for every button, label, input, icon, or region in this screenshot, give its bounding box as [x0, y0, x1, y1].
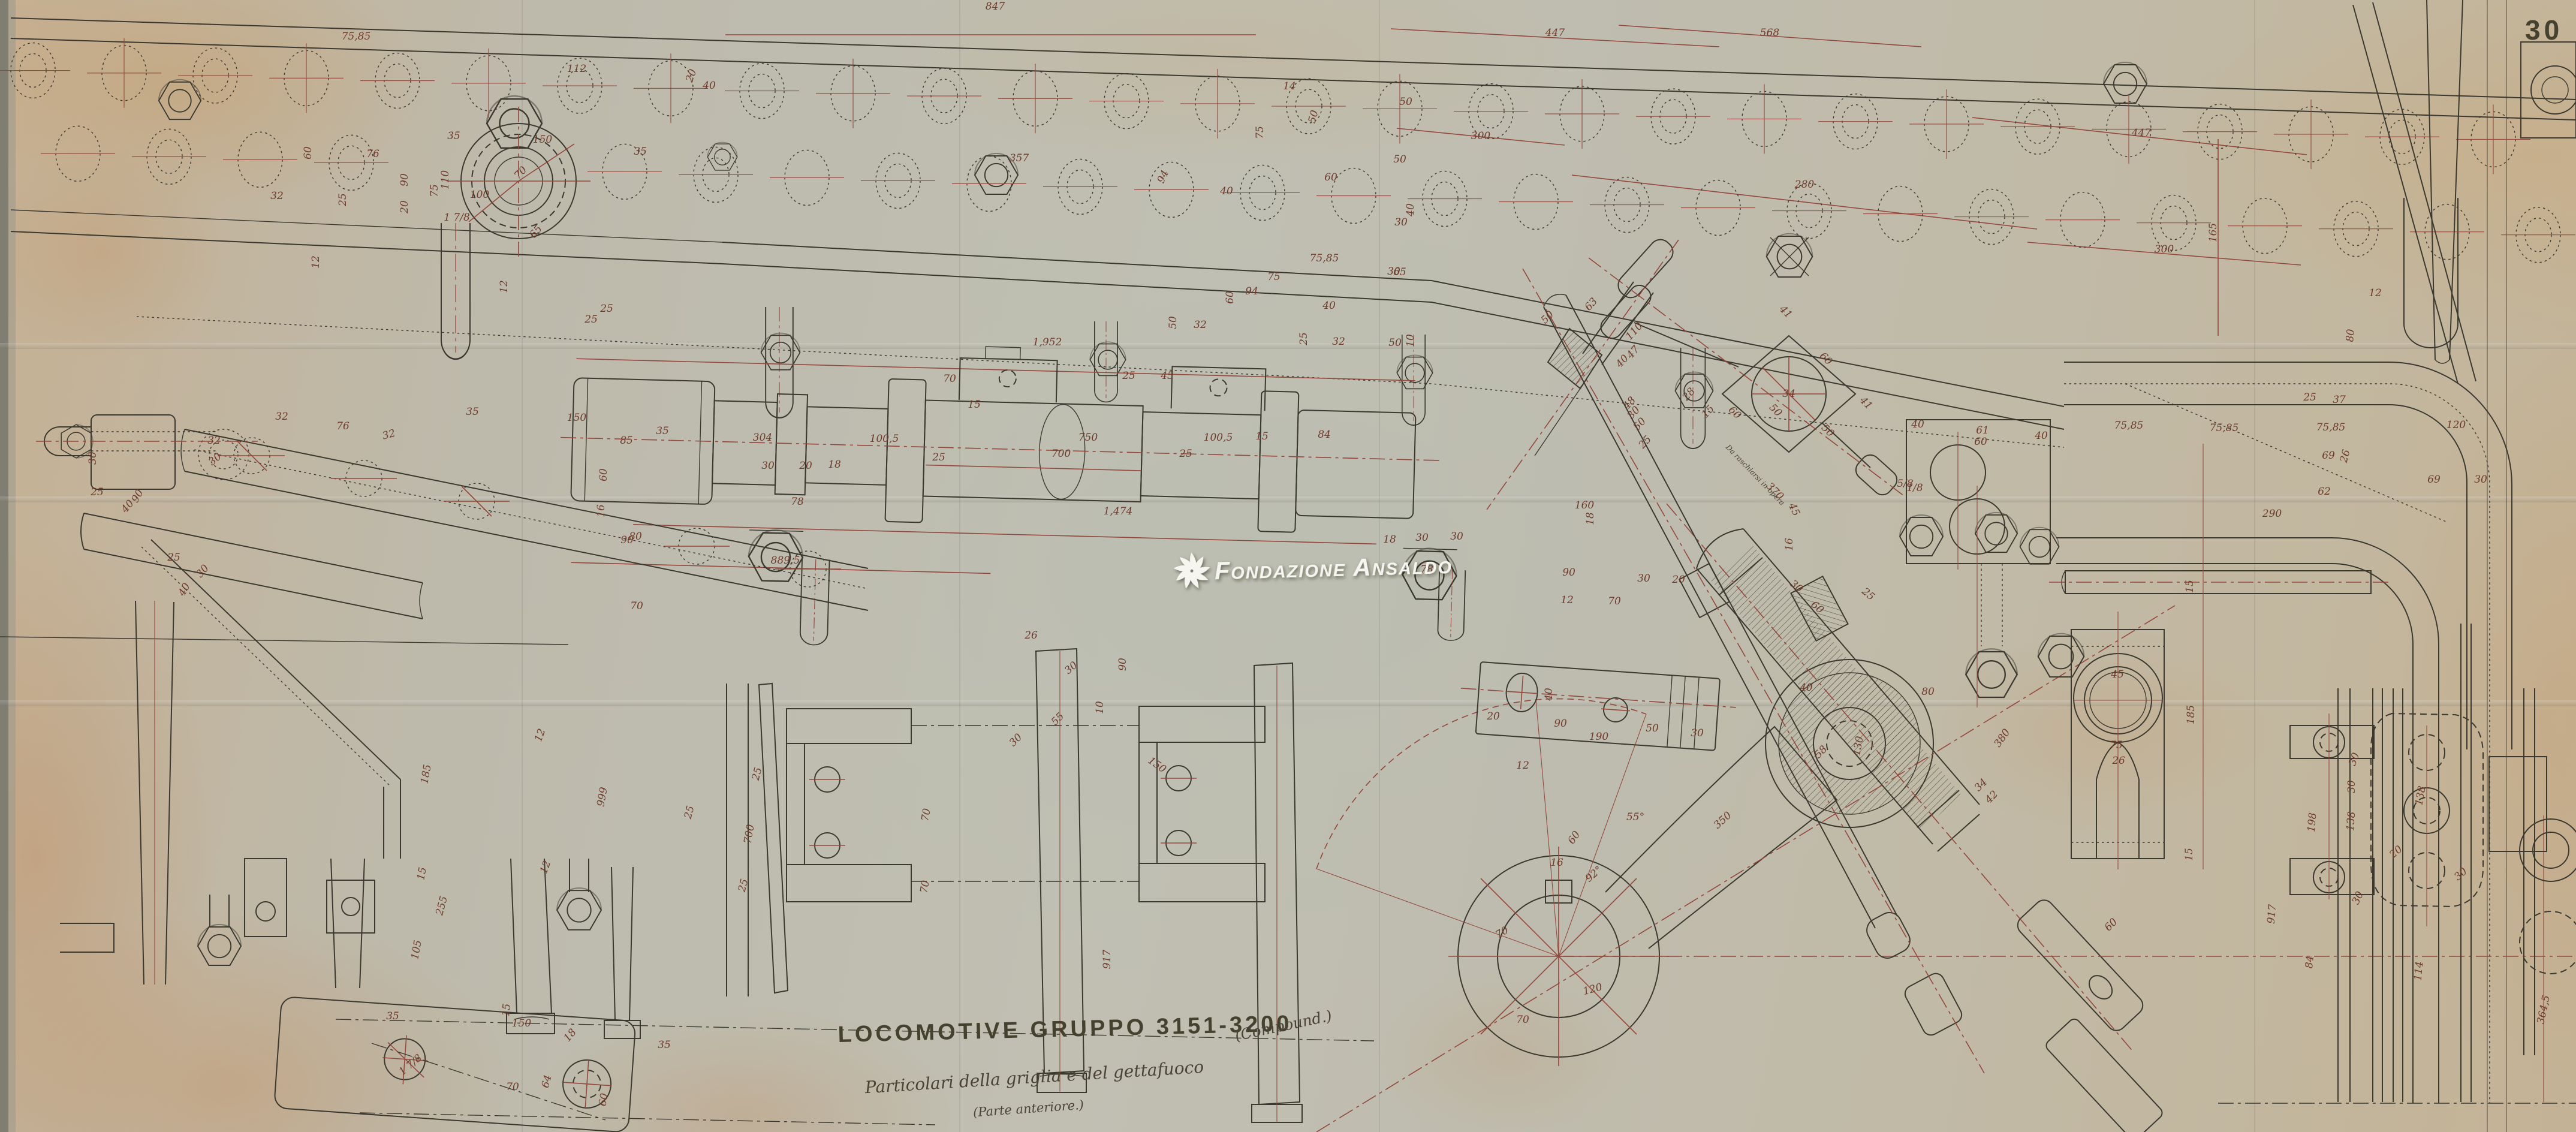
frame-plate-details [2218, 42, 2576, 1103]
dimension-label: 60 [2102, 916, 2120, 934]
dimension-label: 25 [584, 314, 598, 326]
dimension-label: 90 [1562, 567, 1575, 579]
dimension-label: 12 [532, 727, 548, 743]
rivet-hole-rows [0, 38, 2575, 263]
dimension-label: 112 [567, 63, 586, 75]
dimension-label: 18 [1383, 534, 1396, 546]
dimension-label: 165 [2207, 223, 2219, 242]
dimension-label: 16 [1783, 538, 1795, 551]
dimension-label: 290 [2262, 508, 2282, 520]
dimension-label: 10 [1094, 701, 1106, 714]
dimension-label: 40 [702, 80, 716, 92]
dimension-label: 85 [620, 435, 633, 447]
dimension-label: 185 [2185, 705, 2197, 724]
dimension-label: 447 [2131, 127, 2152, 139]
dimension-label: 40 [176, 581, 193, 599]
dimension-label: 60 [1817, 350, 1835, 368]
dimension-label: 60 [1224, 291, 1236, 304]
dimension-label: 84 [2303, 955, 2316, 969]
dimension-label: 78 [791, 496, 804, 508]
dimension-label: 25 [1636, 433, 1654, 451]
dimension-label: 60 [1566, 829, 1583, 846]
dimension-label: 40 [1911, 419, 1924, 430]
bracket-and-foot-assembly [60, 540, 1374, 1132]
dimension-label: 10 [1405, 334, 1417, 347]
dimension-label: 700 [1052, 448, 1071, 460]
dimension-label: 37 [2333, 394, 2346, 406]
dimension-label: 76 [366, 148, 379, 160]
watermark: Fondazione Ansaldo [1173, 546, 1453, 590]
dimension-label: 18 [828, 459, 841, 471]
dimension-label: 120 [1581, 981, 1604, 998]
dimension-label: 45 [1160, 370, 1174, 382]
dimension-label: 70 [512, 164, 530, 182]
dimension-label: 114 [2412, 961, 2426, 982]
dimension-label: 12 [538, 859, 553, 875]
dimension-label: 300 [2155, 243, 2174, 255]
dimension-label: 75,85 [2114, 420, 2144, 432]
dimension-label: 1 7/8 [444, 212, 470, 224]
dimension-label: 70 [506, 1081, 519, 1093]
dimension-label: 64 [540, 1074, 555, 1089]
dimension-label: 35 [658, 1039, 671, 1051]
dimension-label: 15 [968, 399, 981, 411]
dimension-label: 30 [1394, 216, 1408, 228]
dimension-label: 75 [1267, 271, 1281, 283]
dimension-label: 76 [336, 420, 350, 432]
dimension-label: 20 [399, 200, 411, 214]
dimension-label: 60 [302, 146, 314, 159]
dimension-label: 40 [2034, 430, 2048, 442]
page-number: 30 [2525, 14, 2563, 46]
dimension-label: 32 [275, 411, 288, 423]
dimension-label: 50 [1646, 722, 1659, 734]
dimension-label: 42 [1983, 788, 2000, 806]
dimension-label: 138 [2413, 785, 2428, 806]
dimension-label: 700 [742, 823, 757, 845]
dimension-label: 50 [1306, 109, 1321, 124]
dimension-label: 889,5 [771, 555, 800, 567]
dimension-label: 185 [418, 763, 433, 784]
dimension-label: 30 [1637, 573, 1650, 585]
dimension-label: 90 [620, 534, 634, 546]
dimension-label: 16 [1550, 857, 1563, 869]
dimension-label: 25 [1122, 370, 1135, 382]
dimension-label: 364,5 [2535, 994, 2553, 1025]
dimension-label: 25 [1859, 585, 1877, 603]
drawing-linework: 75,8532769020256012150110100706535751 7/… [0, 0, 2576, 1132]
dimension-label: 447 [1545, 27, 1565, 39]
dimension-label: 35 [634, 146, 647, 158]
shaker-rod-assembly [1487, 235, 1984, 1073]
dimension-label: 32 [270, 190, 284, 202]
dimension-label: 917 [1101, 950, 1113, 970]
dimension-label: 35 [656, 425, 669, 437]
dimension-label: 25 [749, 766, 764, 782]
dimension-label: 1,474 [1104, 505, 1133, 517]
dimension-label: 60 [1726, 404, 1744, 422]
dimension-label: 40 [1405, 203, 1417, 217]
dimension-label: 50 [1819, 422, 1837, 440]
hub-detail [447, 107, 590, 257]
dimension-label: 41 [1857, 394, 1875, 412]
dimension-label: 280 [1794, 179, 1815, 191]
dimension-label: 80 [1921, 686, 1935, 698]
scanned-drawing-sheet: 75,8532769020256012150110100706535751 7/… [0, 0, 2576, 1132]
dimension-label: 55° [1626, 811, 1644, 823]
dimension-label: 357 [1010, 152, 1029, 164]
dimension-label: 18 [1584, 512, 1596, 525]
dimension-label: 75 [429, 184, 441, 197]
dimension-label: 45 [2110, 669, 2124, 681]
dimension-label: 30 [1691, 727, 1704, 739]
dimension-label: 60 [1974, 436, 1987, 448]
dimension-label: 32 [207, 435, 221, 447]
dimension-label: 568 [1760, 27, 1780, 39]
dimension-label: 69 [2427, 474, 2441, 486]
hanging-bolts [441, 198, 2458, 448]
dimension-label: 15 [2184, 580, 2196, 593]
dimension-label: 100,5 [870, 433, 899, 445]
dimension-label: 90 [1554, 718, 1567, 730]
dimension-label: 26 [1024, 630, 1038, 642]
dimension-label: 35 [386, 1010, 399, 1022]
dimension-label: 20 [799, 460, 812, 472]
dimension-label: 90 [1117, 658, 1129, 671]
dimension-label: 94 [1155, 168, 1171, 185]
dimension-label: 70 [1608, 595, 1621, 607]
dimension-label: 120 [2447, 419, 2466, 431]
dimension-label: 50 [1767, 402, 1785, 420]
dimension-label: 60 [1324, 171, 1337, 183]
dimension-label: 110 [439, 170, 451, 190]
grate-support-bar [0, 415, 868, 645]
dimension-label: 30 [761, 460, 775, 472]
dimension-label: 80 [2344, 329, 2357, 342]
watermark-text: Fondazione Ansaldo [1214, 551, 1453, 585]
dimension-label: 25 [337, 193, 349, 207]
dimension-label: 160 [1575, 499, 1595, 511]
grate-bar-assembly [0, 18, 2576, 552]
dimension-label: 30 [194, 562, 212, 580]
dimension-label: 25 [1298, 332, 1310, 346]
dimension-label: 41 [1776, 303, 1794, 321]
dimension-label: 100 [470, 189, 490, 201]
pinwheel-icon [1173, 552, 1211, 591]
dimension-label: 35 [447, 130, 460, 142]
drawing-subnote: (Parte anteriore.) [972, 1098, 1084, 1120]
dimension-label: 25 [599, 303, 613, 315]
dimension-label: 70 [1516, 1014, 1529, 1026]
dimension-label: 12 [1560, 594, 1574, 606]
dimension-label: 18 [562, 1026, 579, 1044]
dimension-label: 94 [1245, 285, 1258, 297]
dimension-label: 14 [1283, 80, 1296, 92]
dimension-label: 75 [2110, 739, 2123, 751]
dimension-label: 30 [1415, 532, 1429, 544]
dimension-label: 25 [932, 451, 945, 463]
dimension-label: 34 [1782, 388, 1795, 400]
dimension-label: 300 [1471, 130, 1491, 142]
dimension-label: 20 [1486, 710, 1500, 722]
dimension-label: 30 [2350, 890, 2366, 907]
dimension-label: 26 [2337, 448, 2352, 464]
dimension-label: 750 [1078, 432, 1098, 444]
dimension-label: 30 [87, 451, 99, 465]
shaker-shaft-detail [555, 336, 1471, 662]
dimension-label: 32 [1332, 336, 1345, 348]
drawing-subtitle: Particolari della griglia e del gettafuo… [864, 1057, 1204, 1098]
dimension-label: 75,85 [2316, 422, 2346, 433]
dimension-label: 25 [682, 805, 697, 821]
dimension-label: 70 [943, 373, 956, 385]
dimension-label: 15 [2183, 848, 2195, 861]
dimension-label: 35 [466, 406, 479, 418]
dimension-label: 30 [2346, 780, 2358, 793]
dimension-label: 32 [381, 427, 397, 442]
dimension-label: 45 [1785, 501, 1802, 518]
dimension-label: 198 [2306, 812, 2319, 832]
dimension-label: 50 [1393, 153, 1406, 165]
dimension-label: 32 [1194, 319, 1207, 331]
dimension-label: 25 [2303, 392, 2316, 404]
elbow-angle-bars [2049, 0, 2512, 1103]
dimension-label: 75,85 [1310, 252, 1339, 264]
dimension-label: 70 [630, 600, 643, 612]
dimension-label: 1,952 [1033, 336, 1062, 348]
dimension-label: 50 [1388, 337, 1402, 349]
dimension-label: 1/8 [1906, 482, 1923, 494]
dimension-label: 380 [1991, 727, 2012, 749]
drawing-title: LOCOMOTIVE GRUPPO 3151-3200 [837, 1011, 1292, 1047]
dimension-label: 304 [753, 432, 772, 444]
dimension-label: 90 [399, 173, 411, 186]
dimension-label: 350 [1712, 809, 1734, 832]
dimension-label: 16 [595, 504, 607, 517]
dimension-label: 30 [1450, 531, 1463, 543]
dimension-label: 999 [595, 786, 610, 808]
dimension-label: 50 [1167, 316, 1179, 329]
dimension-label: 150 [567, 412, 587, 424]
dimension-label: 26 [2111, 755, 2125, 767]
dimension-label: 30 [1007, 731, 1025, 749]
dimension-label: 75,85 [342, 31, 371, 43]
dimension-label: 75,85 [2210, 422, 2239, 434]
crank-lever-assembly [1316, 504, 2576, 1132]
dimension-label: 150 [512, 1017, 532, 1029]
dimension-label: 20 [683, 68, 700, 85]
dimension-label: 255 [433, 895, 450, 917]
dimension-label: 70 [919, 808, 933, 823]
dimension-label: 110 [1623, 320, 1646, 343]
dimension-label: 105 [409, 939, 424, 960]
dimension-label: 75 [1254, 126, 1266, 139]
dimension-label: 917 [2265, 904, 2279, 924]
dimension-label: 70 [918, 880, 932, 895]
dimension-label: 40 [1799, 682, 1813, 694]
dimension-label: 847 [986, 1, 1005, 13]
dimension-label: 84 [1318, 429, 1331, 441]
dimension-label: 12 [2369, 287, 2382, 299]
dimension-label: 15 [1255, 430, 1269, 442]
dimension-label: 50 [1399, 96, 1412, 108]
dimension-label: 25 [167, 552, 180, 564]
dimension-label: 30 [1387, 266, 1400, 278]
dimension-label: 20 [1671, 574, 1685, 586]
dimension-label: 40 [1219, 185, 1233, 197]
dimension-label: 190 [1589, 731, 1609, 743]
dimension-label: 150 [533, 134, 553, 146]
dimension-label: 12 [310, 255, 322, 269]
dimension-label: 62 [2318, 486, 2331, 498]
dimension-label: 30 [2346, 751, 2362, 767]
dimension-label: 61 [1976, 424, 1989, 436]
dimension-label: 138 [2345, 811, 2358, 831]
dimension-label: 15 [415, 866, 429, 881]
dimension-label: 15 [1700, 403, 1717, 420]
dimension-label: 12 [498, 280, 510, 293]
dimension-label: 25 [1179, 448, 1192, 460]
dimension-label: 69 [2322, 450, 2335, 462]
dimension-label: 60 [596, 1092, 610, 1107]
dimension-label: 70 [1493, 925, 1511, 941]
dimension-label: 25 [90, 486, 104, 498]
dimension-label: 100,5 [1204, 432, 1233, 444]
rod-annotation: Da raschiarsi in opera [1724, 442, 1786, 507]
dimension-label: 60 [598, 468, 610, 481]
dimension-label: 92° [1583, 864, 1605, 885]
dimension-label: 30 [2474, 474, 2487, 486]
dimension-label: 40 [1543, 688, 1555, 702]
dimension-label: 30 [2452, 865, 2470, 883]
dimension-label: 12 [1516, 760, 1529, 772]
dimension-label: 34 [1972, 776, 1990, 794]
dimension-label: 15 [500, 1003, 513, 1017]
dimension-label: 40 [1322, 300, 1336, 312]
